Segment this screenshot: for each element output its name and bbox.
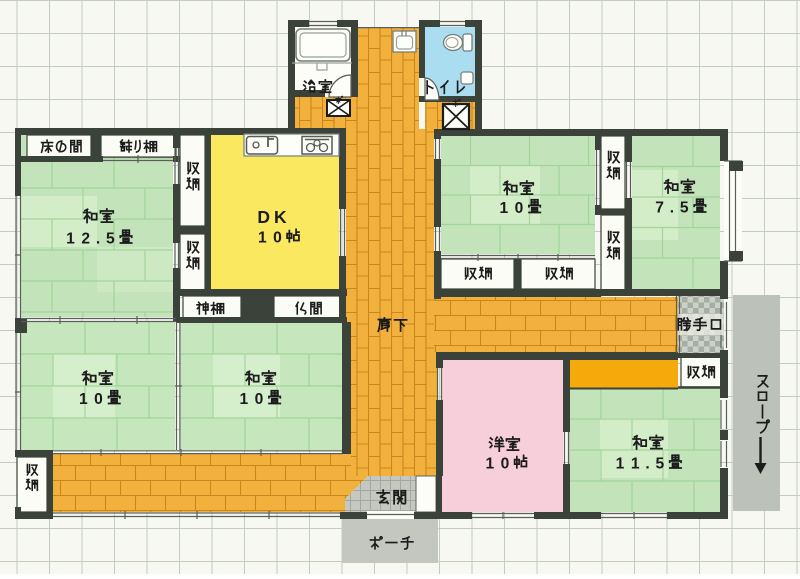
svg-text:1: 1 xyxy=(631,455,640,472)
svg-text:2: 2 xyxy=(81,230,90,247)
svg-text:1: 1 xyxy=(499,200,508,217)
svg-text:5: 5 xyxy=(106,230,115,247)
svg-text:1: 1 xyxy=(79,391,88,408)
svg-text:0: 0 xyxy=(255,391,264,408)
svg-text:0: 0 xyxy=(94,391,103,408)
svg-text:5: 5 xyxy=(655,455,664,472)
svg-text:DK: DK xyxy=(257,207,290,227)
svg-text:1: 1 xyxy=(485,455,494,472)
svg-text:1: 1 xyxy=(258,229,267,246)
svg-text:1: 1 xyxy=(239,391,248,408)
svg-text:5: 5 xyxy=(680,199,689,216)
svg-text:0: 0 xyxy=(273,229,282,246)
svg-text:.: . xyxy=(670,199,674,216)
svg-text:.: . xyxy=(96,230,100,247)
svg-text:1: 1 xyxy=(66,230,75,247)
svg-text:.: . xyxy=(645,455,649,472)
svg-text:0: 0 xyxy=(515,200,524,217)
svg-text:7: 7 xyxy=(655,199,664,216)
svg-text:0: 0 xyxy=(501,455,510,472)
svg-text:1: 1 xyxy=(616,455,625,472)
